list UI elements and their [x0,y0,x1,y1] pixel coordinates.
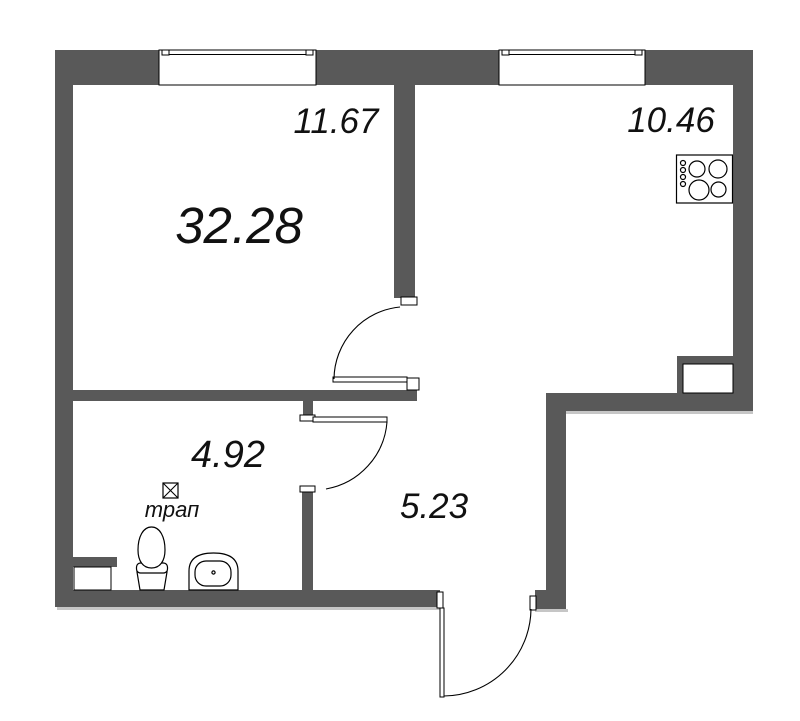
area-label-living: 11.67 [294,102,381,141]
wall-right [733,85,753,411]
wall-niche-top [73,557,117,567]
window-frame [159,50,316,85]
window-kitchen [499,50,645,85]
wall-partition-living-kitchen [394,85,415,298]
toilet-bowl [138,527,165,568]
door-swing-arc [326,422,387,489]
wall-kitchen-hallway [546,393,753,411]
floor-plan: 11.67 10.46 32.28 4.92 5.23 трап [0,0,800,721]
wall-shadow [535,609,568,612]
window-end-tick [502,50,509,55]
wall-left [55,85,73,607]
door-bathroom [300,415,387,492]
area-label-hallway: 5.23 [400,487,469,526]
wall-bathroom-right-lower [302,492,313,590]
wall-shadow [566,411,753,414]
stove-knob [681,182,686,187]
door-leaf [313,417,387,422]
sink-icon [189,553,238,590]
door-entrance [437,592,536,697]
stove-burner [711,182,726,197]
door-leaf [333,377,407,382]
wall-shadow [57,607,443,610]
door-living [333,297,419,390]
wall-shaft-left [677,364,683,393]
stove-knob [681,161,686,166]
door-swing-arc [444,609,531,696]
stove-knob [681,168,686,173]
stove-knob [681,175,686,180]
drain-label: трап [145,497,199,522]
window-end-tick [306,50,313,55]
vent-shaft [683,364,733,393]
door-jamb [401,297,417,305]
area-label-bathroom: 4.92 [191,434,265,476]
door-jamb [300,486,315,492]
stove-icon [677,155,733,203]
bathroom-niche [74,567,111,590]
window-frame [499,50,645,85]
area-label-kitchen: 10.46 [627,101,715,140]
door-jamb [437,592,443,608]
wall-hallway-right [546,411,566,590]
window-end-tick [635,50,642,55]
wall-shaft-top [677,356,733,364]
stove-burner [689,161,705,177]
stove-burner [709,160,727,178]
door-leaf [440,608,444,697]
door-jamb [530,596,536,610]
wall-bottom-right-stub [535,590,566,609]
wall-bathroom-right-upper [303,401,313,415]
toilet-icon [137,527,168,590]
area-label-total: 32.28 [175,197,303,254]
wall-living-bathroom [73,390,417,401]
window-living [159,50,316,85]
stove-burner [689,180,709,200]
door-jamb [407,378,419,390]
drain-icon [163,483,178,498]
toilet-tank [137,572,167,590]
wall-bottom [55,590,440,607]
sink-drain-hole [212,571,215,574]
door-swing-arc [334,307,400,379]
window-end-tick [162,50,169,55]
